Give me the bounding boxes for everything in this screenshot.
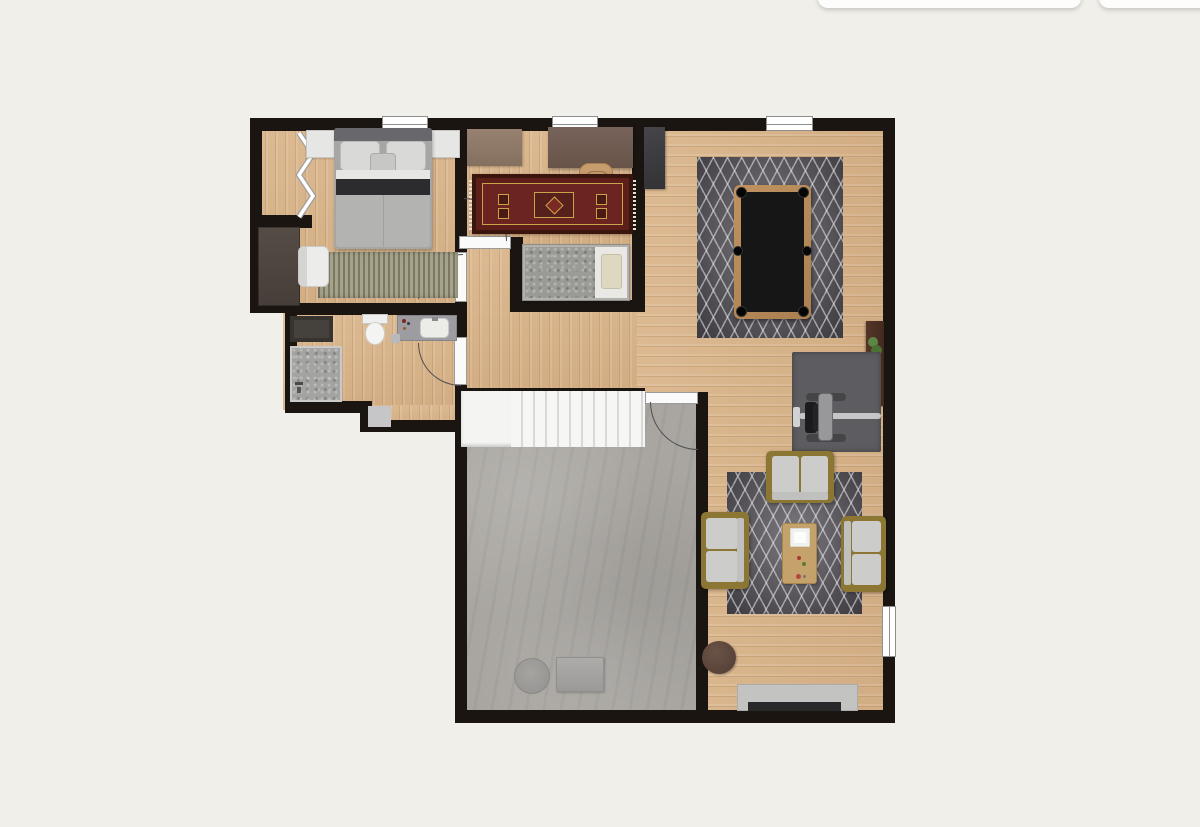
- bathroom-dark-cabinet[interactable]: [290, 316, 333, 342]
- table-flower: [797, 556, 801, 560]
- sofa-cushion: [772, 456, 799, 494]
- tray-inner: [794, 532, 806, 543]
- pool-pocket: [733, 246, 743, 256]
- sofa-cushion: [706, 518, 738, 549]
- bed-duvet-crease: [383, 195, 384, 247]
- bathroom-dark-cabinet-top: [294, 320, 329, 338]
- hall-mat[interactable]: [368, 406, 391, 427]
- wall-bottom: [455, 710, 895, 723]
- stairs-treads: [511, 391, 645, 447]
- wardrobe-dark[interactable]: [258, 227, 300, 306]
- oriental-rug[interactable]: [472, 174, 633, 234]
- single-bed-blanket: [525, 247, 595, 298]
- shower-valve: [297, 387, 301, 393]
- pouf-round[interactable]: [702, 641, 736, 674]
- rug-motif: [596, 194, 607, 205]
- table-flower: [796, 574, 801, 579]
- window-living-right[interactable]: [882, 606, 896, 657]
- toilet-bowl: [365, 322, 385, 345]
- sink-faucet: [432, 317, 438, 321]
- oriental-rug-field: [476, 178, 629, 230]
- office-desk[interactable]: [548, 127, 633, 168]
- pool-pocket: [798, 187, 809, 198]
- window-greatroom-top[interactable]: [766, 116, 813, 131]
- wall-nook-bottom: [510, 300, 645, 312]
- toilet[interactable]: [362, 314, 388, 345]
- soap-bottle: [407, 322, 410, 325]
- wall-bathroom-bottom: [285, 401, 372, 413]
- weight-bench[interactable]: [792, 390, 881, 442]
- sofa-cushion: [801, 456, 828, 494]
- sofa-seat-edge: [772, 492, 828, 500]
- rug-motif: [498, 208, 509, 219]
- armchair-white[interactable]: [298, 246, 329, 287]
- pool-table[interactable]: [734, 185, 811, 319]
- towel-hook: [391, 334, 400, 343]
- double-bed[interactable]: [334, 128, 432, 249]
- tv[interactable]: [748, 702, 841, 711]
- window-mullion: [383, 124, 427, 125]
- coffee-table[interactable]: [782, 523, 817, 584]
- pool-pocket: [736, 306, 747, 317]
- office-sideboard[interactable]: [467, 129, 522, 166]
- round-ottoman[interactable]: [514, 658, 550, 694]
- sofa-right[interactable]: [841, 516, 886, 592]
- table-flower: [802, 562, 806, 566]
- sofa-cushion: [852, 554, 881, 585]
- soap-bottle: [403, 327, 406, 330]
- bed-duvet-gray: [336, 195, 430, 247]
- sofa-seat-edge: [844, 521, 851, 585]
- shower-head: [295, 382, 303, 385]
- sofa-seat-edge: [737, 518, 744, 582]
- sink-basin: [420, 318, 449, 338]
- slate-cabinet[interactable]: [644, 127, 665, 189]
- pool-pocket: [798, 306, 809, 317]
- striped-rug[interactable]: [318, 252, 458, 298]
- sofa-top[interactable]: [766, 451, 834, 503]
- soap-bottle: [402, 319, 406, 323]
- oriental-rug-medallion: [534, 192, 574, 218]
- window-mullion: [889, 607, 890, 656]
- coffee-table-tray: [790, 528, 810, 547]
- pool-table-felt: [741, 192, 804, 312]
- stairs[interactable]: [461, 391, 645, 447]
- toolbar-card-right[interactable]: [1099, 0, 1200, 8]
- pool-pocket: [736, 187, 747, 198]
- sofa-left[interactable]: [701, 512, 749, 589]
- nightstand-right[interactable]: [428, 130, 460, 158]
- rug-motif: [498, 194, 509, 205]
- bed-duvet-dark-band: [336, 179, 430, 195]
- single-bed-pillow: [601, 254, 622, 289]
- bench-pad: [818, 393, 833, 441]
- armchair-back: [299, 247, 307, 286]
- pool-pocket: [802, 246, 812, 256]
- sofa-cushion: [852, 521, 881, 552]
- window-mullion: [553, 124, 597, 125]
- sofa-cushion: [706, 551, 738, 582]
- shower[interactable]: [290, 346, 342, 402]
- storage-box[interactable]: [556, 657, 604, 692]
- floorplan-canvas: [0, 0, 1200, 827]
- rug-fringe-left: [469, 178, 472, 230]
- table-flower: [803, 575, 806, 578]
- rug-motif: [596, 208, 607, 219]
- medallion-diamond: [545, 196, 563, 214]
- sink-vanity[interactable]: [397, 315, 457, 341]
- window-mullion: [767, 124, 812, 125]
- bed-headboard: [334, 128, 432, 141]
- rug-fringe-right: [633, 178, 636, 230]
- shower-fixture: [293, 380, 305, 394]
- single-bed[interactable]: [522, 244, 630, 301]
- toolbar-card-left[interactable]: [818, 0, 1081, 8]
